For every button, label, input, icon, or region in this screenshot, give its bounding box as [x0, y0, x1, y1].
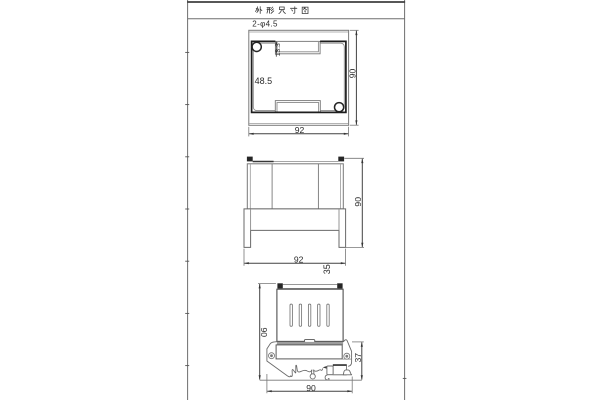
- svg-text:90: 90: [348, 69, 358, 79]
- svg-text:90: 90: [353, 197, 363, 207]
- svg-text:35: 35: [322, 264, 332, 274]
- svg-text:92: 92: [294, 254, 304, 264]
- svg-text:13.3: 13.3: [275, 43, 282, 56]
- svg-text:90: 90: [306, 383, 316, 393]
- svg-text:92: 92: [295, 125, 305, 135]
- svg-text:48.5: 48.5: [255, 76, 273, 86]
- svg-text:90: 90: [259, 328, 269, 338]
- svg-text:37: 37: [353, 353, 363, 363]
- svg-text:2-φ4.5: 2-φ4.5: [252, 19, 278, 28]
